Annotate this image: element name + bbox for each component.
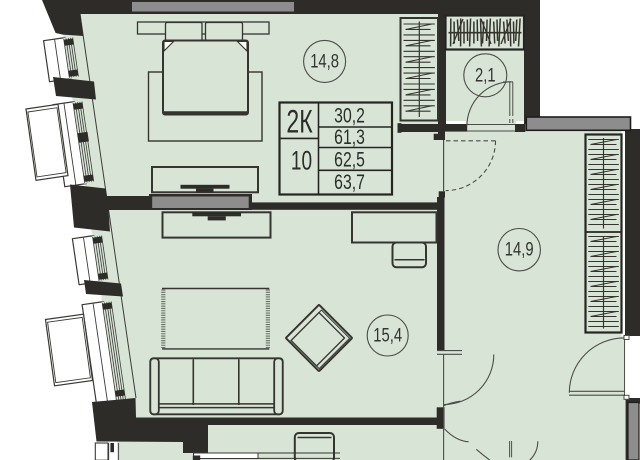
svg-text:10: 10 [291,145,312,175]
svg-text:63,7: 63,7 [334,170,365,194]
svg-text:61,3: 61,3 [334,125,365,149]
svg-text:14,9: 14,9 [505,239,534,260]
svg-text:2,1: 2,1 [475,65,496,86]
svg-text:30,2: 30,2 [334,103,365,127]
svg-text:15,4: 15,4 [373,325,402,346]
svg-text:2К: 2К [286,104,313,140]
svg-text:62,5: 62,5 [334,147,365,171]
svg-text:14,8: 14,8 [310,51,339,72]
